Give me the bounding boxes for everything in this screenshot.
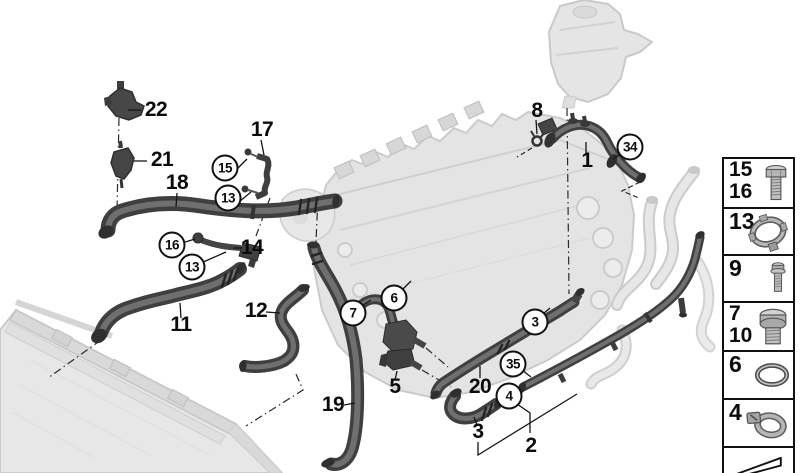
- ghost-expansion-tank: [549, 0, 652, 108]
- profile-clamp-icon: [745, 210, 791, 254]
- callout-21-1: 21: [151, 148, 173, 172]
- callout-2-13: 2: [525, 434, 536, 458]
- ghost-radiator: [0, 302, 282, 473]
- callout-circled-15-0: 15: [212, 155, 239, 182]
- legend-row-9: 9: [724, 256, 793, 303]
- callout-3-12: 3: [472, 420, 483, 444]
- legend-number: 4: [729, 400, 742, 424]
- callout-circled-3-6: 3: [522, 309, 549, 336]
- legend-number: 710: [729, 303, 752, 347]
- callout-22-0: 22: [145, 98, 167, 122]
- screw-icon: [765, 259, 791, 299]
- callout-circled-35-7: 35: [500, 351, 527, 378]
- legend-number: 9: [729, 256, 742, 280]
- legend-number-label: 7: [729, 303, 752, 325]
- legend-number-label: 10: [729, 325, 752, 347]
- callout-1-10: 1: [581, 149, 592, 173]
- legend-number-label: 6: [729, 352, 742, 376]
- hose-12: [239, 283, 311, 373]
- hose-clamp-icon: [743, 404, 791, 442]
- callout-20-11: 20: [469, 375, 491, 399]
- callout-12-6: 12: [245, 299, 267, 323]
- legend-row-direction-arrow-icon: [724, 448, 793, 473]
- callout-11-5: 11: [170, 313, 191, 337]
- parts-diagram: 222118171411121958120321513161376335434 …: [0, 0, 800, 473]
- callout-8-9: 8: [531, 99, 542, 123]
- legend-number-label: 9: [729, 256, 742, 280]
- legend-number: 1516: [729, 159, 752, 203]
- legend-number-label: 16: [729, 181, 752, 203]
- callout-circled-13-1: 13: [215, 185, 242, 212]
- legend-row-13: 13: [724, 209, 793, 256]
- callout-circled-34-9: 34: [617, 134, 644, 161]
- legend-row-4: 4: [724, 400, 793, 448]
- callout-circled-16-2: 16: [159, 232, 186, 259]
- vent-valve-22: [104, 81, 144, 120]
- sealing-plug-icon: [755, 307, 791, 347]
- legend-row-7-10: 710: [724, 303, 793, 352]
- callout-19-7: 19: [322, 393, 344, 417]
- callout-circled-7-4: 7: [340, 300, 367, 327]
- legend-number: 6: [729, 352, 742, 376]
- callout-14-4: 14: [241, 236, 263, 260]
- legend-row-15-16: 1516: [724, 159, 793, 209]
- callout-5-8: 5: [389, 375, 400, 399]
- o-ring-icon: [753, 361, 791, 389]
- callout-circled-6-5: 6: [381, 285, 408, 312]
- legend-row-6: 6: [724, 352, 793, 400]
- bracket-17: [242, 149, 269, 198]
- sensor-21: [111, 141, 134, 188]
- legend-number-label: 15: [729, 159, 752, 181]
- hex-bolt-icon: [761, 162, 791, 204]
- legend-number-label: 4: [729, 400, 742, 424]
- callout-17-3: 17: [251, 118, 273, 142]
- callout-circled-13-3: 13: [179, 254, 206, 281]
- direction-arrow-icon: [731, 457, 785, 473]
- fasteners-legend: 151613971064: [722, 157, 795, 473]
- parts-diagram-canvas: [0, 0, 800, 473]
- callout-18-2: 18: [166, 171, 188, 195]
- callout-circled-4-8: 4: [496, 383, 523, 410]
